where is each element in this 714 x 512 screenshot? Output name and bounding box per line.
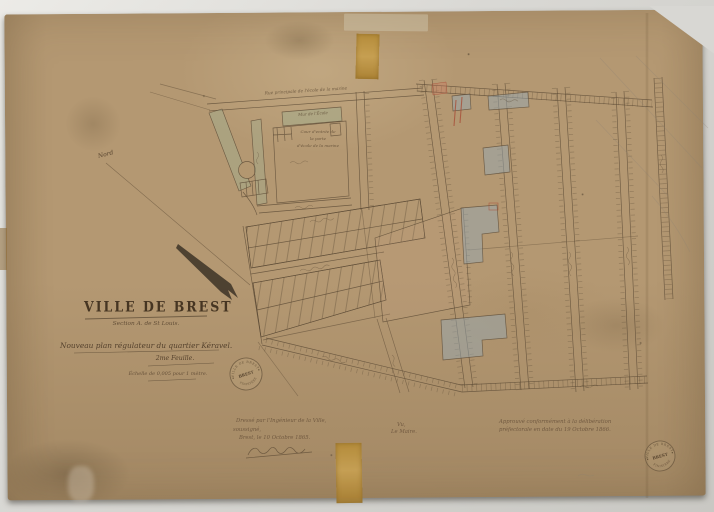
tape-left-edge — [0, 228, 7, 270]
central-place — [375, 208, 470, 393]
engineer-signature — [246, 447, 312, 458]
worn-patch-bottom-left — [68, 466, 94, 502]
tape-top-vertical — [355, 34, 379, 80]
tape-top-horizontal — [344, 14, 428, 32]
stamp-title-block: VILLE DE BREST FINISTÈRE BREST — [226, 354, 266, 394]
scanned-historical-map: VILLE DE BREST FINISTÈRE BREST VILLE DE … — [0, 0, 714, 512]
school-wall-bar — [282, 107, 342, 126]
topleft-boundary-lines — [150, 84, 216, 110]
rampart-wall — [209, 109, 257, 215]
title-rules — [74, 316, 219, 381]
pencil-sketch-lines — [578, 56, 708, 476]
map-linework — [74, 56, 708, 476]
north-indicator — [106, 163, 250, 300]
top-street — [207, 88, 424, 111]
tape-bottom — [335, 443, 362, 503]
stamp-bottom-right: VILLE DE BREST FINISTÈRE BREST — [641, 438, 679, 475]
school-courtyard — [257, 121, 352, 213]
